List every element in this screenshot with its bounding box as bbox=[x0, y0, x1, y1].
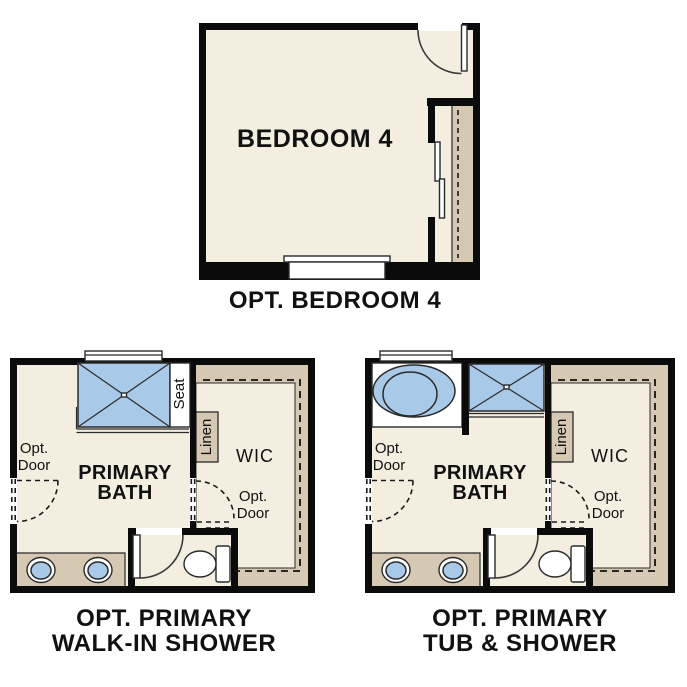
toilet-bowl bbox=[184, 551, 216, 577]
door-leaf bbox=[488, 535, 495, 578]
bath3-room-label: PRIMARY BATH bbox=[410, 463, 550, 503]
bath3-linen-label: Linen bbox=[554, 419, 571, 456]
door-leaf bbox=[462, 25, 468, 71]
bath3-toilet-room bbox=[483, 528, 593, 593]
toilet-bowl bbox=[539, 551, 571, 577]
sliding-door-panel bbox=[440, 179, 445, 218]
bath2-wic-label: WIC bbox=[225, 446, 285, 467]
floorplan-sheet: BEDROOM 4 OPT. BEDROOM 4 bbox=[0, 0, 687, 687]
toilet-tank bbox=[571, 546, 585, 582]
bath2-opt-door-wic-label: Opt. Door bbox=[223, 489, 283, 522]
door-leaf bbox=[133, 535, 140, 578]
floorplan-bedroom4 bbox=[195, 18, 485, 290]
bath2-vanity bbox=[17, 553, 125, 586]
sliding-door-panel bbox=[435, 142, 440, 181]
bath3-window bbox=[380, 351, 452, 361]
bath2-room-label: PRIMARY BATH bbox=[55, 463, 195, 503]
shower-drain bbox=[504, 385, 509, 389]
bath2-linen-label: Linen bbox=[199, 419, 216, 456]
bath2-window bbox=[85, 351, 162, 361]
bath3-opt-door-wic-label: Opt. Door bbox=[578, 489, 638, 522]
shower-drain bbox=[122, 393, 127, 397]
closet-shelf bbox=[452, 106, 473, 262]
toilet-tank bbox=[216, 546, 230, 582]
bath2-seat-label: Seat bbox=[172, 379, 189, 410]
bath2-caption: OPT. PRIMARY WALK-IN SHOWER bbox=[15, 606, 313, 656]
bath3-caption: OPT. PRIMARY TUB & SHOWER bbox=[370, 606, 670, 656]
bedroom4-caption: OPT. BEDROOM 4 bbox=[195, 288, 475, 313]
bathtub bbox=[372, 363, 462, 427]
bath3-wic-label: WIC bbox=[580, 446, 640, 467]
bedroom4-window bbox=[284, 256, 390, 279]
bath3-vanity bbox=[372, 553, 480, 586]
bedroom4-room-label: BEDROOM 4 bbox=[215, 125, 415, 154]
bath2-toilet-room bbox=[128, 528, 238, 593]
